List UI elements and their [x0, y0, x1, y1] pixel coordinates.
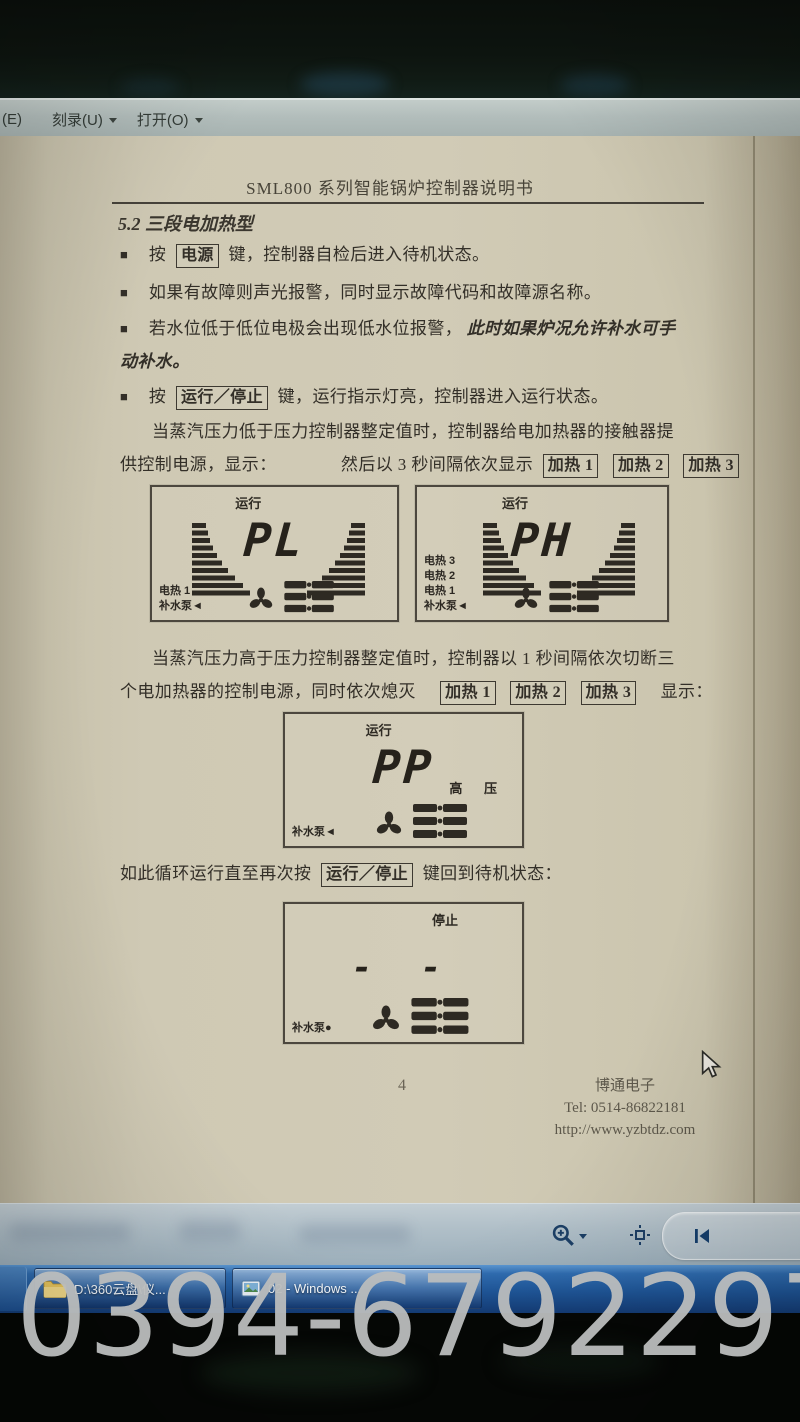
menu-item-open[interactable]: 打开(O) [127, 100, 213, 138]
panel-side-labels: 补水泵◄ 电热 1 电热 2 电热 3 [424, 554, 468, 614]
power-key-box: 电源 [176, 244, 219, 268]
para-high-line1: 当蒸汽压力高于压力控制器整定值时，控制器以 1 秒间隔依次切断三 [152, 644, 675, 669]
menu-item-burn[interactable]: 刻录(U) [42, 100, 127, 138]
page-number: 4 [398, 1077, 406, 1095]
burner-icon [549, 581, 601, 614]
lcd-panel-ph: 运行 PH 补水泵◄ 电热 1 电热 2 电热 3 [415, 485, 669, 622]
run-stop-key-box: 运行／停止 [176, 386, 268, 410]
previous-frame-icon [690, 1224, 714, 1248]
bullet-fault-alarm: ■ 如果有故障则声光报警，同时显示故障代码和故障源名称。 [120, 278, 601, 303]
bullet-square: ■ [120, 321, 128, 337]
bullet-square: ■ [120, 389, 128, 405]
heat2-key-box: 加热 2 [510, 681, 566, 705]
heat1-key-box: 加热 1 [543, 454, 599, 478]
footer-company-block: 博通电子 Tel: 0514-86822181 http://www.yzbtd… [510, 1075, 740, 1141]
menu-item-email-partial[interactable]: (E) [0, 111, 28, 128]
heat1-key-box: 加热 1 [440, 681, 496, 705]
panel-value-pl: PL [150, 513, 399, 567]
lcd-panel-stop: 停止 - - 补水泵● [283, 902, 524, 1044]
lcd-panel-pl: 运行 PL 补水泵◄ 电热 1 [150, 485, 399, 622]
panel-value-dashes: - - [285, 948, 522, 988]
section-title: 5.2 三段电加热型 [118, 210, 253, 236]
toolbar-reflection [300, 1224, 410, 1244]
high-pressure-label: 高 压 [449, 778, 506, 797]
panel-status-stop: 停止 [432, 910, 458, 929]
burner-icon [413, 804, 469, 840]
bullet-square: ■ [120, 285, 128, 301]
bullet-run-stop-key: ■ 按 运行／停止 键，运行指示灯亮，控制器进入运行状态。 [120, 382, 608, 410]
panel-status-run: 运行 [366, 720, 392, 739]
manual-header-title: SML800 系列智能锅炉控制器说明书 [0, 174, 780, 199]
bullet-square: ■ [120, 247, 128, 263]
burner-icon [411, 998, 471, 1036]
run-stop-key-box: 运行／停止 [321, 863, 413, 887]
menu-item-burn-label: 刻录(U) [52, 109, 103, 130]
panel-status-run: 运行 [502, 493, 528, 512]
mouse-cursor-icon [700, 1050, 722, 1080]
fan-icon [248, 587, 274, 613]
bullet-low-water-line1: ■ 若水位低于低位电极会出现低水位报警， 此时如果炉况允许补水可手 [120, 314, 676, 339]
company-url: http://www.yzbtdz.com [510, 1119, 740, 1141]
zoom-button[interactable] [548, 1220, 588, 1250]
watermark-phone-number: 0394-6792297 [16, 1252, 800, 1382]
chevron-down-icon [109, 118, 117, 123]
panel-side-labels: 补水泵● [292, 1021, 332, 1036]
screen-reflection [300, 72, 390, 96]
panel-side-labels: 补水泵◄ 电热 1 [159, 584, 203, 614]
bullet-power-key: ■ 按 电源 键，控制器自检后进入待机状态。 [120, 240, 489, 268]
actual-size-icon [628, 1223, 652, 1247]
heat2-key-box: 加热 2 [613, 454, 669, 478]
screen-reflection [560, 74, 630, 96]
para-low-line2: 供控制电源，显示： 然后以 3 秒间隔依次显示 加热 1 加热 2 加热 3 [120, 450, 744, 478]
loop-line: 如此循环运行直至再次按 运行／停止 键回到待机状态： [120, 859, 562, 887]
top-bezel-dark-area [0, 0, 800, 98]
scanned-manual-page: SML800 系列智能锅炉控制器说明书 5.2 三段电加热型 ■ 按 电源 键，… [0, 136, 800, 1203]
burner-icon [284, 581, 336, 614]
actual-size-button[interactable] [624, 1221, 656, 1249]
para-high-line2: 个电加热器的控制电源，同时依次熄灭 加热 1 加热 2 加热 3 显示： [120, 677, 713, 705]
lcd-panel-pp: 运行 PP 高 压 补水泵◄ [283, 712, 524, 848]
chevron-down-icon [195, 118, 203, 123]
header-rule [112, 202, 704, 204]
para-low-line1: 当蒸汽压力低于压力控制器整定值时，控制器给电加热器的接触器提 [152, 417, 674, 442]
fan-icon [513, 587, 539, 613]
fan-icon [375, 811, 403, 839]
photographed-monitor-screen: (E) 刻录(U) 打开(O) SML800 系列智能锅炉控制器说明书 5.2 … [0, 0, 800, 1422]
bullet-low-water-line2: 动补水。 [120, 347, 190, 372]
fan-icon [371, 1005, 401, 1035]
heat3-key-box: 加热 3 [581, 681, 637, 705]
chevron-down-icon [579, 1234, 587, 1239]
menu-item-open-label: 打开(O) [137, 109, 189, 130]
panel-side-labels: 补水泵◄ [292, 825, 336, 840]
heat3-key-box: 加热 3 [683, 454, 739, 478]
screen-reflection [120, 78, 180, 96]
company-tel: Tel: 0514-86822181 [510, 1097, 740, 1119]
toolbar-reflection [180, 1220, 240, 1242]
magnifier-plus-icon [550, 1222, 576, 1248]
toolbar-reflection [10, 1222, 130, 1242]
panel-status-run: 运行 [235, 493, 261, 512]
previous-image-button[interactable] [685, 1222, 719, 1250]
photo-viewer-menu-bar: (E) 刻录(U) 打开(O) [0, 98, 800, 139]
